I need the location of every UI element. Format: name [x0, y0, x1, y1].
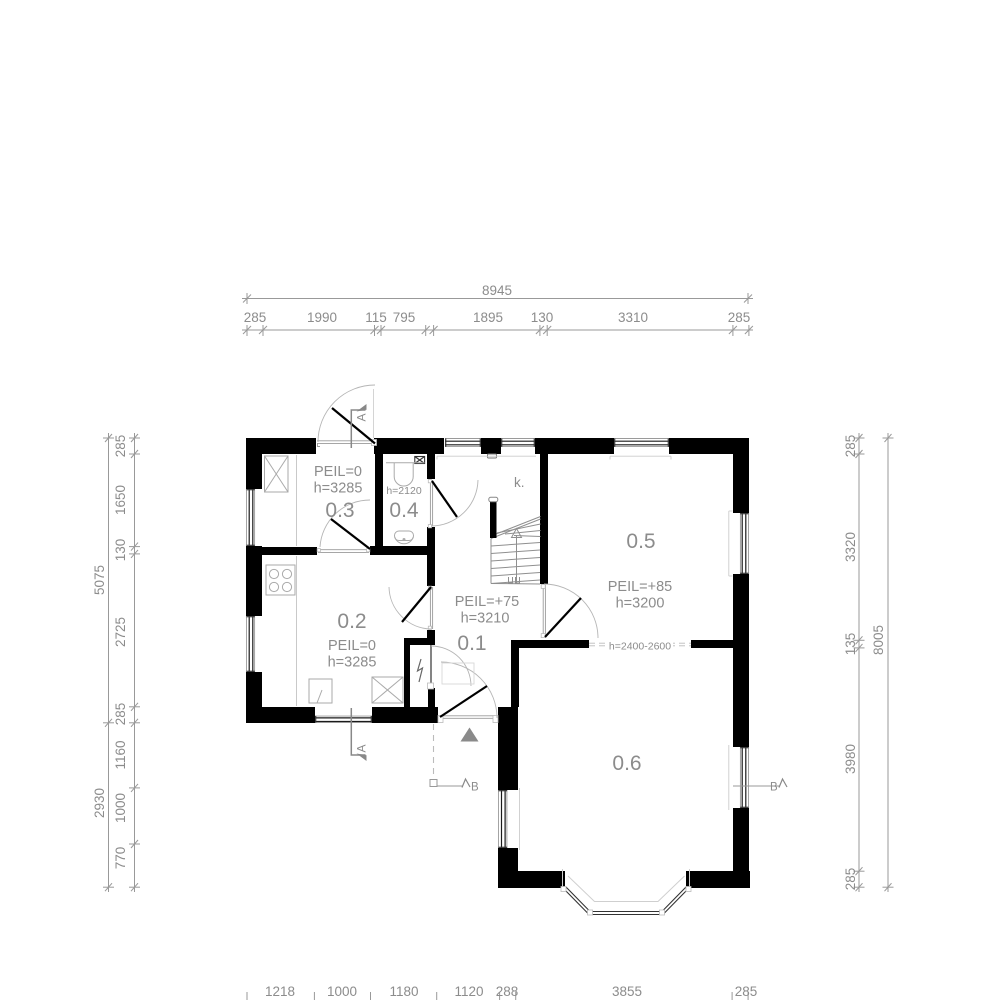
- svg-text:1218: 1218: [265, 984, 295, 999]
- svg-text:5075: 5075: [92, 565, 107, 595]
- svg-text:0.2: 0.2: [337, 610, 366, 633]
- svg-text:115: 115: [365, 310, 387, 325]
- svg-text:795: 795: [393, 310, 416, 325]
- svg-text:PEIL=+75: PEIL=+75: [455, 594, 520, 610]
- svg-text:A: A: [355, 744, 369, 752]
- svg-text:285: 285: [843, 435, 858, 458]
- svg-text:1895: 1895: [473, 310, 503, 325]
- svg-text:8945: 8945: [482, 283, 512, 298]
- svg-text:1180: 1180: [389, 984, 418, 999]
- svg-text:285: 285: [113, 703, 128, 726]
- svg-text:h=2400-2600: h=2400-2600: [609, 641, 671, 653]
- svg-text:135: 135: [843, 633, 858, 656]
- svg-text:PEIL=0: PEIL=0: [314, 464, 362, 480]
- svg-text:130: 130: [113, 539, 128, 562]
- svg-text:3310: 3310: [618, 310, 648, 325]
- svg-text:h=2120: h=2120: [386, 485, 421, 497]
- svg-text:2725: 2725: [113, 617, 128, 647]
- svg-text:285: 285: [244, 310, 267, 325]
- svg-text:3320: 3320: [843, 532, 858, 562]
- svg-text:285: 285: [728, 310, 751, 325]
- svg-text:1160: 1160: [113, 740, 128, 769]
- svg-text:1650: 1650: [113, 485, 128, 515]
- svg-text:h=3285: h=3285: [328, 655, 377, 671]
- svg-text:PEIL=0: PEIL=0: [328, 638, 376, 654]
- svg-text:0.5: 0.5: [626, 530, 655, 553]
- svg-text:B: B: [770, 782, 778, 794]
- svg-text:1990: 1990: [307, 310, 337, 325]
- svg-text:288: 288: [496, 984, 519, 999]
- svg-text:h=3210: h=3210: [461, 611, 510, 627]
- svg-text:k.: k.: [514, 475, 525, 490]
- svg-text:0.3: 0.3: [325, 499, 354, 522]
- svg-text:3980: 3980: [843, 744, 858, 774]
- svg-text:285: 285: [843, 868, 858, 891]
- svg-text:285: 285: [113, 435, 128, 458]
- svg-text:A: A: [355, 413, 369, 421]
- svg-text:0.1: 0.1: [457, 632, 486, 655]
- svg-text:130: 130: [531, 310, 554, 325]
- svg-text:770: 770: [113, 847, 128, 870]
- svg-text:h=3200: h=3200: [616, 596, 665, 612]
- svg-text:PEIL=+85: PEIL=+85: [608, 579, 673, 595]
- svg-text:3855: 3855: [612, 984, 642, 999]
- svg-text:h=3285: h=3285: [314, 481, 363, 497]
- svg-text:1120: 1120: [454, 984, 483, 999]
- svg-text:1000: 1000: [327, 984, 357, 999]
- svg-text:2930: 2930: [92, 788, 107, 818]
- svg-text:8005: 8005: [871, 625, 886, 655]
- svg-text:1000: 1000: [113, 793, 128, 823]
- svg-text:0.4: 0.4: [389, 499, 419, 522]
- svg-text:B: B: [471, 782, 479, 794]
- svg-text:285: 285: [735, 984, 758, 999]
- svg-text:0.6: 0.6: [612, 752, 641, 775]
